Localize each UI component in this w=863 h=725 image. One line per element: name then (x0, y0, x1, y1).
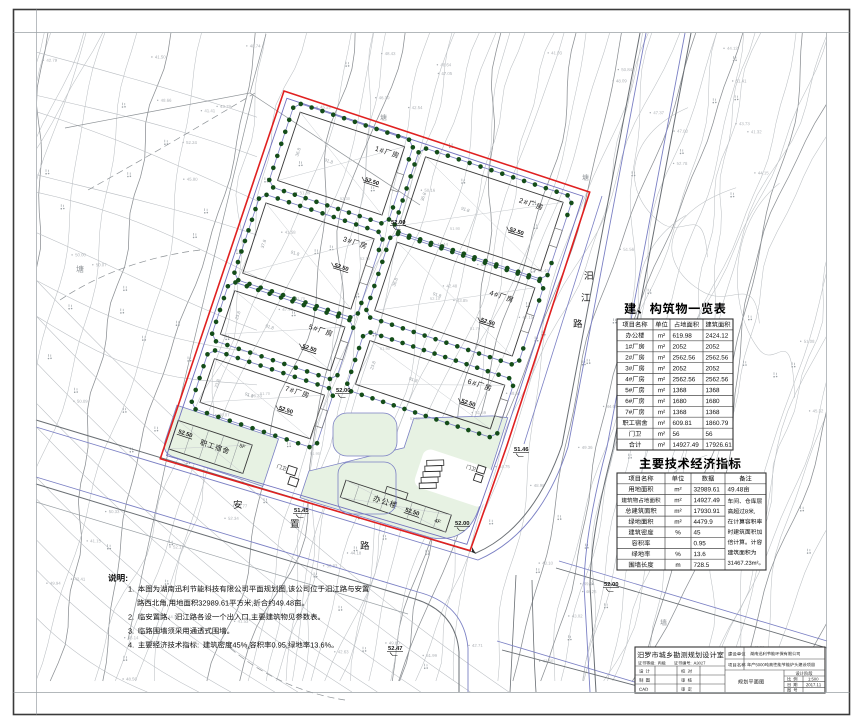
svg-text:91.8: 91.8 (432, 291, 442, 299)
svg-text:36.8: 36.8 (391, 277, 399, 287)
svg-text:37.8: 37.8 (260, 238, 268, 248)
svg-text:91.8: 91.8 (290, 249, 300, 257)
svg-text:91.8: 91.8 (265, 323, 275, 331)
svg-text:91.8: 91.8 (408, 376, 418, 384)
svg-text:36.8: 36.8 (294, 147, 302, 157)
svg-text:36.8: 36.8 (420, 191, 428, 201)
svg-text:91.8: 91.8 (244, 391, 254, 399)
svg-text:91.8: 91.8 (324, 157, 334, 165)
svg-text:23.8: 23.8 (369, 360, 377, 370)
svg-text:91.8: 91.8 (460, 206, 470, 214)
svg-text:23.8: 23.8 (214, 378, 222, 388)
svg-text:23.8: 23.8 (234, 310, 242, 320)
